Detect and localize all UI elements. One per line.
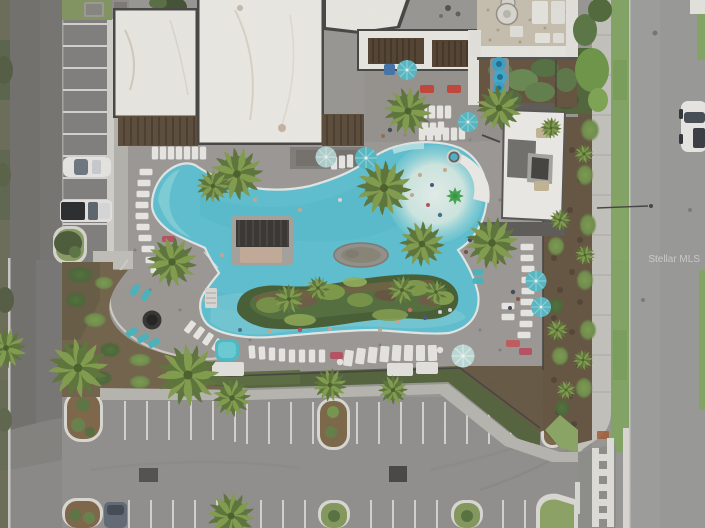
svg-text:Stellar MLS: Stellar MLS [648,254,700,265]
